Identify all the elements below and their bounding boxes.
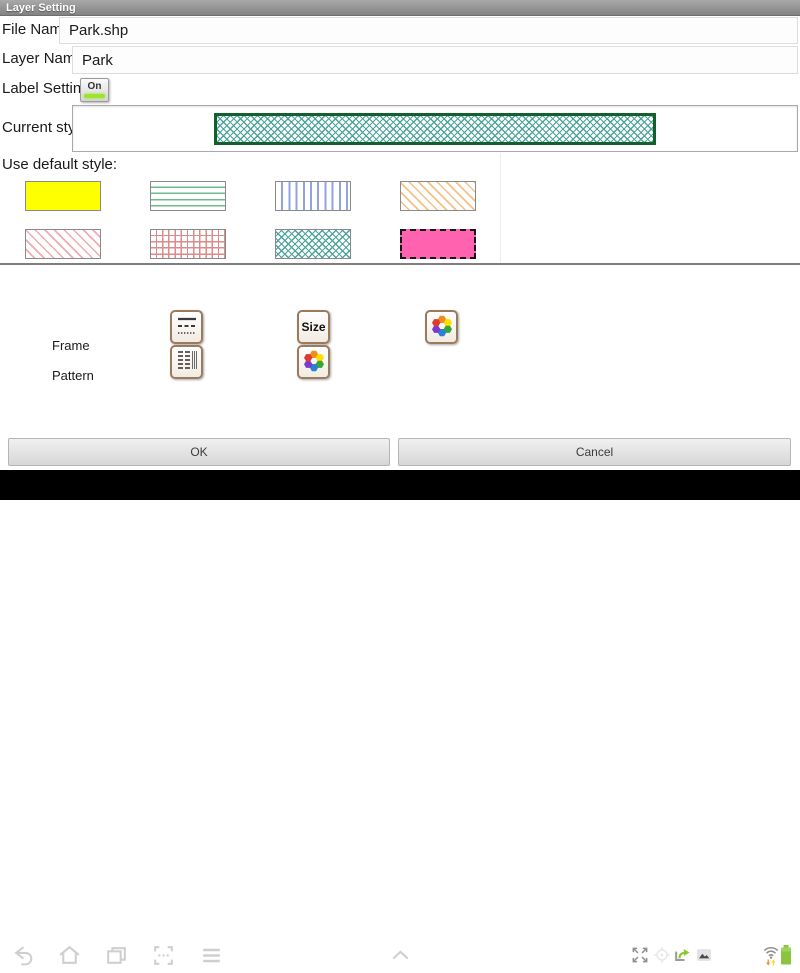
file-name-field[interactable]: Park.shp [59,17,798,44]
location-icon[interactable] [652,945,672,965]
size-button[interactable]: Size [297,310,330,344]
label-setting-toggle-text: On [88,81,102,92]
layer-name-input[interactable] [72,46,798,74]
recents-icon[interactable] [104,943,129,968]
label-setting-toggle[interactable]: On [80,78,109,102]
size-button-label: Size [301,320,325,334]
pattern-color-button[interactable] [297,345,330,379]
fullscreen-icon[interactable] [630,945,650,965]
battery-icon [780,944,792,966]
default-style-orange-diagonal-hatch[interactable] [400,181,476,211]
default-style-grid [25,181,476,259]
ok-button-label: OK [190,445,207,459]
line-styles-icon [175,313,199,342]
color-wheel-icon [430,314,454,341]
android-navbar: 16:52 [0,470,800,500]
back-icon[interactable] [12,943,37,968]
pattern-style-button[interactable] [170,345,203,379]
current-style-box [72,105,798,152]
toggle-on-indicator [84,94,105,98]
chevron-up-icon[interactable] [388,943,413,968]
home-icon[interactable] [57,943,82,968]
color-wheel-icon [302,349,326,376]
pattern-label: Pattern [52,369,94,383]
column-divider [500,153,501,263]
default-style-solid-yellow[interactable] [25,181,101,211]
pattern-list-icon [175,348,199,377]
frame-line-style-button[interactable] [170,310,203,344]
frame-color-button[interactable] [425,310,458,344]
default-style-green-horizontal-lines[interactable] [150,181,226,211]
file-name-value: Park.shp [69,22,128,39]
menu-icon[interactable] [199,943,224,968]
wifi-icon[interactable] [762,943,780,967]
sync-icon[interactable] [672,945,692,965]
section-divider [0,263,800,265]
status-clock: 16:52 [714,940,762,970]
default-style-blue-vertical-lines[interactable] [275,181,351,211]
ok-button[interactable]: OK [8,438,390,466]
window-title: Layer Setting [6,2,76,14]
default-style-teal-crosshatch[interactable] [275,229,351,259]
gallery-icon[interactable] [694,945,714,965]
screenshot-icon[interactable] [151,943,176,968]
default-style-red-grid[interactable] [150,229,226,259]
window-title-bar: Layer Setting [0,0,800,16]
frame-label: Frame [52,339,90,353]
current-style-swatch[interactable] [214,113,656,145]
cancel-button-label: Cancel [576,445,613,459]
use-default-style-label: Use default style: [2,157,117,173]
default-style-pink-dashed-border[interactable] [400,229,476,259]
default-style-red-diagonal-hatch[interactable] [25,229,101,259]
cancel-button[interactable]: Cancel [398,438,791,466]
